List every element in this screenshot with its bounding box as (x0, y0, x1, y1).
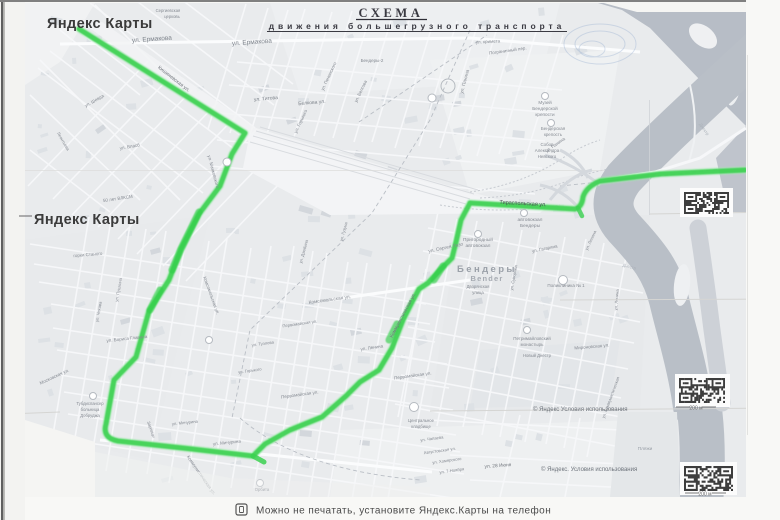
svg-text:Петримайловский: Петримайловский (513, 335, 551, 341)
svg-text:Тубдиспансер: Тубдиспансер (76, 401, 104, 406)
svg-text:Яндекс Карты: Яндекс Карты (47, 16, 153, 32)
svg-text:Пляжи: Пляжи (638, 446, 653, 452)
svg-text:Бендеры: Бендеры (520, 223, 541, 229)
svg-text:Bender: Bender (470, 274, 503, 283)
svg-text:Дворянская: Дворянская (467, 284, 490, 289)
svg-text:автовокзал: автовокзал (466, 244, 491, 249)
svg-text:200 м: 200 м (698, 492, 712, 498)
svg-text:Бендерской: Бендерской (532, 105, 558, 111)
svg-text:Невского: Невского (538, 154, 557, 159)
svg-text:200 м: 200 м (689, 406, 703, 412)
svg-text:СХЕМА: СХЕМА (359, 6, 424, 20)
svg-text:Яндекс Карты: Яндекс Карты (34, 212, 140, 228)
svg-text:улица: улица (472, 290, 484, 295)
svg-text:движения большегрузного тран: движения большегрузного транспорта (269, 21, 565, 31)
svg-text:© Яндекс. Условия использован: © Яндекс. Условия использования (541, 466, 637, 473)
svg-text:крепости: крепости (535, 112, 555, 117)
svg-text:больница: больница (81, 407, 100, 412)
svg-text:кладбище: кладбище (411, 424, 431, 429)
svg-text:Центральное: Центральное (408, 418, 435, 423)
svg-text:крепость: крепость (544, 132, 563, 137)
svg-text:Добруджа: Добруджа (80, 413, 100, 418)
svg-text:Бендерская: Бендерская (541, 126, 566, 131)
svg-text:Можно не печатать, установите: Можно не печатать, установите Яндекс.Кар… (256, 505, 551, 517)
svg-text:церковь: церковь (164, 14, 180, 19)
svg-text:Новый Днестр: Новый Днестр (523, 353, 552, 358)
svg-text:Бендеры-2: Бендеры-2 (361, 58, 384, 63)
svg-text:монастырь: монастырь (521, 342, 545, 347)
svg-text:Сергиевская: Сергиевская (156, 8, 181, 13)
svg-text:автовокзал: автовокзал (518, 218, 543, 223)
svg-text:© Яндекс Условия использован: © Яндекс Условия использования (533, 406, 628, 413)
